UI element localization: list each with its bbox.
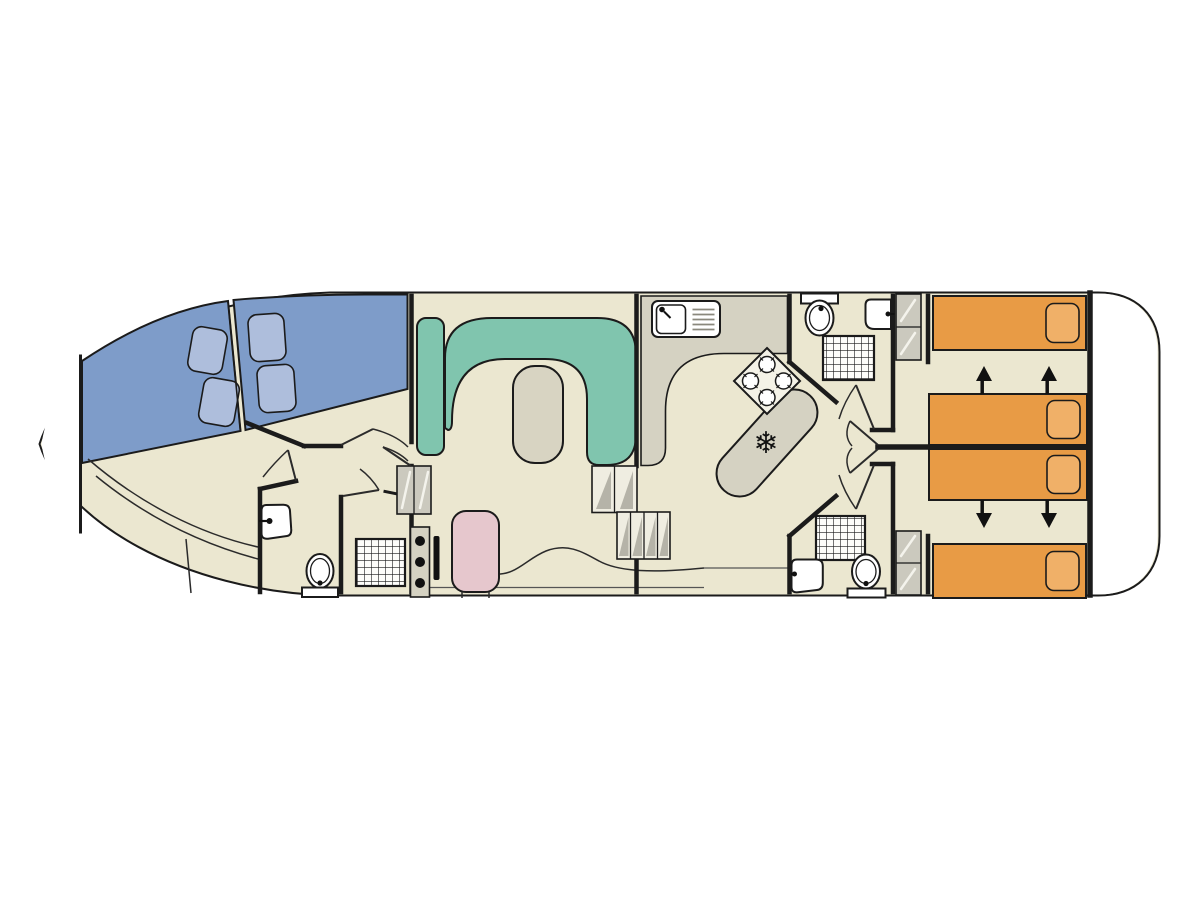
pillow	[197, 376, 240, 428]
steps-upper	[592, 466, 637, 513]
shower-tray	[356, 539, 405, 586]
helm-seat	[452, 511, 499, 592]
console-knob	[415, 578, 425, 588]
wardrobe	[397, 466, 431, 514]
shower-tray	[816, 516, 865, 560]
console-knob	[415, 557, 425, 567]
pillow	[186, 325, 228, 375]
pillow	[1046, 304, 1079, 343]
boat-floorplan-page: ❄	[0, 0, 1200, 900]
faucet-icon	[886, 312, 891, 317]
toilet-flush	[863, 581, 868, 586]
stern-deck	[1093, 294, 1158, 595]
pillow	[1046, 552, 1079, 591]
wardrobe	[896, 294, 921, 360]
steps-lower	[617, 512, 670, 559]
washbasin	[792, 560, 823, 593]
fridge-snowflake-icon: ❄	[753, 426, 778, 461]
faucet-icon	[659, 307, 665, 313]
boat-floorplan: ❄	[0, 0, 1200, 900]
console-knob	[415, 536, 425, 546]
pillow	[247, 313, 286, 362]
toilet-flush	[317, 580, 322, 585]
throttle-lever	[434, 536, 440, 580]
shower-tray	[823, 336, 874, 380]
sofa-side-arm	[417, 318, 444, 455]
toilet-base	[848, 589, 886, 598]
wardrobe	[896, 531, 921, 595]
pillow	[1047, 456, 1080, 494]
pillow	[1047, 401, 1080, 439]
toilet-flush	[818, 306, 823, 311]
saloon-table	[513, 366, 563, 463]
bow-deck	[42, 358, 81, 530]
faucet-icon	[267, 518, 273, 524]
pillow	[256, 364, 296, 413]
toilet-base	[302, 588, 338, 598]
